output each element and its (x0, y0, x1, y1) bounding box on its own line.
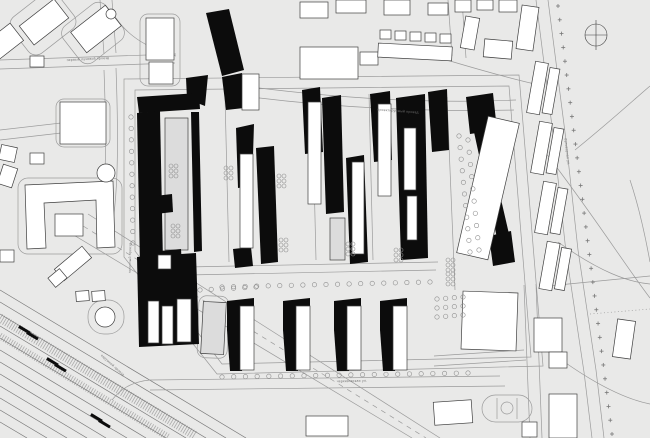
tower-slab (378, 104, 391, 196)
masterplan-drawing: первый лучевой проездпроектируемый проез… (0, 0, 650, 438)
existing-building (461, 291, 518, 351)
tower-slab (240, 306, 254, 370)
street-label: черкизовская ул. (337, 379, 368, 384)
tower-slab (393, 306, 407, 370)
round-structure (97, 164, 115, 182)
building-footprint (201, 301, 227, 354)
tower-slab (148, 301, 159, 343)
existing-building (549, 394, 577, 438)
tower-slab (296, 306, 310, 370)
street-label: погонный проезд (128, 243, 133, 273)
existing-building (384, 0, 410, 15)
new-building (155, 194, 173, 214)
existing-building (30, 153, 44, 164)
existing-building (499, 0, 517, 12)
existing-building (395, 31, 406, 40)
existing-building (477, 0, 493, 10)
existing-building (300, 47, 358, 79)
existing-building (428, 3, 448, 15)
existing-building (149, 62, 173, 84)
existing-building (306, 416, 348, 436)
existing-building (360, 52, 378, 65)
existing-building (0, 250, 14, 262)
tower-slab (347, 306, 361, 370)
tower-slab (407, 196, 417, 240)
existing-building (522, 422, 537, 437)
new-building (137, 111, 163, 266)
tower-slab (242, 74, 259, 110)
tower-slab (162, 306, 173, 344)
existing-building (336, 0, 366, 13)
existing-building (30, 56, 44, 67)
tower-slab (177, 299, 191, 342)
new-building (233, 247, 253, 268)
existing-building (300, 2, 328, 18)
existing-building (425, 33, 436, 42)
existing-building (0, 145, 17, 163)
tower-slab (404, 128, 416, 190)
building-footprint (330, 218, 345, 260)
existing-building (146, 18, 174, 60)
existing-building (433, 400, 473, 426)
existing-building (483, 39, 512, 59)
existing-building (380, 30, 391, 39)
existing-building (549, 352, 567, 368)
existing-building (60, 102, 106, 144)
tower-slab (158, 255, 171, 269)
existing-building (92, 291, 106, 302)
tower-slab (308, 102, 321, 204)
site-plan-canvas: первый лучевой проездпроектируемый проез… (0, 0, 650, 438)
round-structure (95, 307, 115, 327)
existing-building (455, 0, 471, 12)
existing-building (440, 34, 451, 43)
tower-slab (240, 154, 253, 248)
tower-slab (352, 162, 364, 254)
round-structure (106, 9, 116, 19)
existing-building (76, 291, 90, 302)
existing-building (410, 32, 421, 41)
existing-building (534, 318, 562, 352)
existing-building (55, 214, 83, 236)
